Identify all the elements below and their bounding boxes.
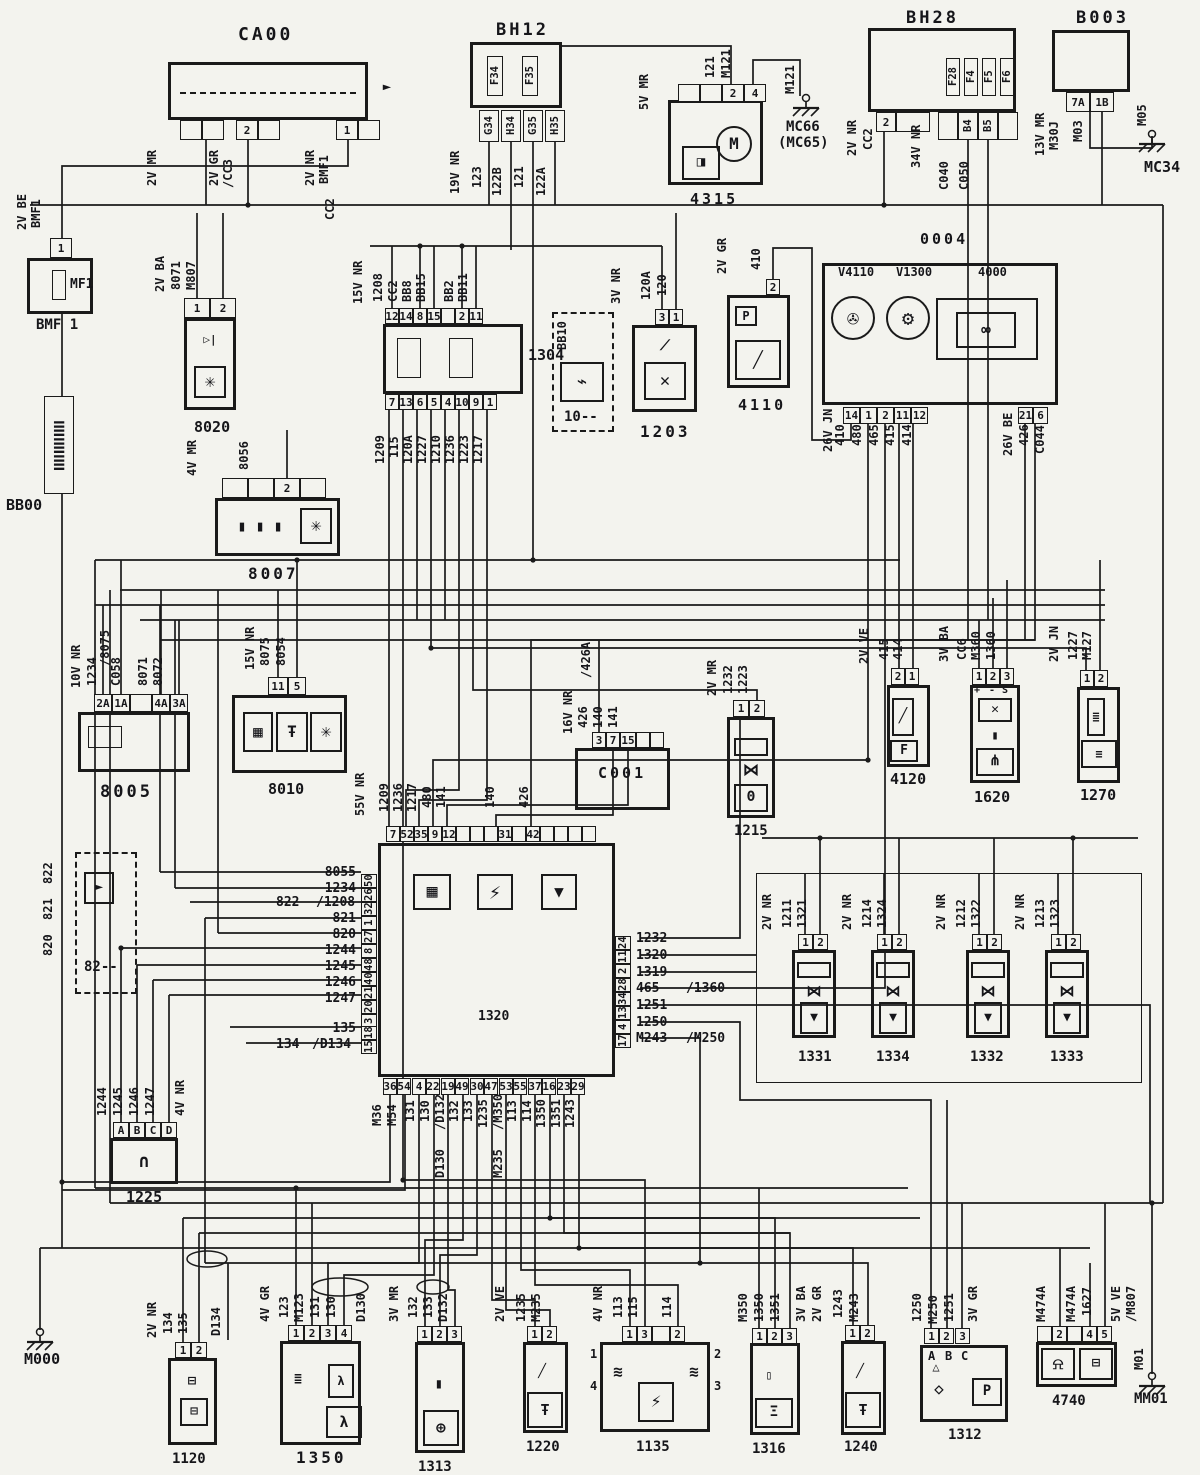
label: 4000 (978, 266, 1007, 278)
label: 1620 (974, 790, 1010, 805)
pin-cell: 24 (615, 936, 631, 950)
wire-label: M807 (185, 261, 197, 290)
wire-label: 2V NR (1014, 894, 1026, 930)
pin-cell: 55 (513, 1078, 527, 1095)
label: 1334 (876, 1050, 910, 1064)
p-icon: P (972, 1378, 1002, 1406)
bowtie-icon: ⋈ (1054, 982, 1080, 1000)
label: 821 (333, 912, 356, 925)
pin-cell: 26 (361, 888, 377, 902)
junction-dot (1070, 835, 1075, 840)
wire-label: 115 (388, 436, 400, 458)
label: 1350 (296, 1450, 347, 1466)
wire-label: 13V MR (1034, 113, 1046, 156)
pin-cell: 2 (987, 934, 1002, 950)
wire-label: 19V NR (449, 151, 461, 194)
wire-label: 3V BA (938, 626, 950, 662)
wire-label: 2V NR (846, 120, 858, 156)
stepper-icon: ∩ (118, 1146, 170, 1178)
wire-label: 1213 (1034, 899, 1046, 928)
pin-cell: 2 (986, 668, 1000, 685)
wire-label: 1322 (970, 899, 982, 928)
pin-cell: 12 (385, 308, 399, 324)
label: MF1 (70, 278, 93, 291)
label: BMF 1 (36, 318, 78, 332)
wire-label: 132 (407, 1296, 419, 1318)
none-icon (1050, 962, 1084, 978)
label: 1245 (325, 960, 356, 973)
label: 135 (333, 1022, 356, 1035)
wire-label: 2V VE (858, 628, 870, 664)
bar-icon: ▮ (990, 726, 1000, 744)
label: /1360 (686, 982, 725, 995)
wire-label: M03 (1072, 120, 1084, 142)
wire-label: 131 (309, 1296, 321, 1318)
eq-icon: ≡ (1081, 740, 1117, 768)
label: 1320 (478, 1010, 509, 1023)
wire-label: 820 (42, 934, 54, 956)
pin-cell: 4 (744, 84, 766, 102)
wire-label: 140 (592, 706, 604, 728)
label: 1316 (752, 1442, 786, 1456)
pin-cell: 1 (417, 1326, 432, 1342)
pin-cell-blank (652, 1326, 670, 1342)
wire-label: 410 (834, 424, 846, 446)
wire-label: BB10 (556, 321, 568, 350)
wire-label: M235 (492, 1149, 504, 1178)
pin-cell: H35 (545, 110, 565, 142)
sensor-icon: ▯ (758, 1356, 780, 1394)
label: BB00 (6, 498, 42, 513)
pin-cell: 3 (782, 1328, 797, 1344)
temp-icon: Ŧ (527, 1392, 563, 1428)
engine-icon: ⚙ (886, 296, 930, 340)
intake-icon: Ξ (755, 1398, 793, 1428)
pin-cell-blank (700, 84, 722, 102)
label: MC34 (1144, 160, 1180, 175)
pin-cell: 16 (542, 1078, 556, 1095)
pin-cell: D (161, 1122, 177, 1138)
wire-label: 8072 (152, 657, 164, 686)
wire-label: /D132 (434, 1094, 446, 1130)
wire-label: 414 (892, 638, 904, 660)
wire-label: CC2 (862, 128, 874, 150)
pin-cell-blank (1037, 1326, 1052, 1342)
wire-label: 15V NR (244, 627, 256, 670)
pin-cell: A (113, 1122, 129, 1138)
ground-mc66 (811, 108, 819, 116)
pin-cell: 23 (557, 1078, 571, 1095)
none-icon (797, 962, 831, 978)
wire-label: 1223 (458, 435, 470, 464)
label: 0004 (920, 232, 968, 247)
spark-icon: ⚡ (638, 1382, 674, 1422)
label: 82-- (84, 960, 118, 974)
wire-label: 1243 (564, 1099, 576, 1128)
label: 1304 (528, 348, 564, 363)
wire-label: 1208 (372, 273, 384, 302)
wire-label: 1350 (753, 1293, 765, 1322)
wire-label: 2V NR (146, 1302, 158, 1338)
label: (MC65) (778, 136, 829, 150)
pin-cell: 2 (939, 1328, 954, 1344)
label: 2 (714, 1348, 721, 1360)
wire-label: BB15 (415, 273, 427, 302)
wire-label: C058 (110, 657, 122, 686)
bowtie-icon: ⋈ (737, 760, 765, 780)
label: 134 (276, 1038, 299, 1051)
wire-label: 3V BA (795, 1286, 807, 1322)
label: M243 (636, 1032, 667, 1045)
pin-cell-blank (582, 826, 596, 842)
pin-cell: 2 (670, 1326, 685, 1342)
label: /D134 (312, 1038, 351, 1051)
pin-cell-blank (300, 478, 326, 498)
pin-cell: 20 (361, 1000, 377, 1014)
wire-label: 1234 (86, 657, 98, 686)
wire-label: 141 (607, 706, 619, 728)
pin-cell: 1 (361, 916, 377, 930)
pin-cell: 1B (1090, 92, 1114, 112)
wire-label: 8071 (137, 657, 149, 686)
motor-icon: M (716, 126, 752, 162)
wire-label: 1245 (112, 1087, 124, 1116)
wire-label: 1236 (444, 435, 456, 464)
pin-cell: 27 (361, 930, 377, 944)
pin-cell: 1 (924, 1328, 939, 1344)
wire-label: M360 (970, 631, 982, 660)
pin-cell: 2 (542, 1326, 557, 1342)
wire-label: 1244 (96, 1087, 108, 1116)
wire-label: D132 (437, 1293, 449, 1322)
pin-cell: 3 (320, 1325, 336, 1341)
pin-cell: 1 (798, 934, 813, 950)
pin-cell: 2 (455, 308, 469, 324)
label: 3 (714, 1380, 721, 1392)
wire-label: 5V MR (638, 74, 650, 110)
wire-label: 2V GR (811, 1286, 823, 1322)
wire-label: 1243 (832, 1289, 844, 1318)
label: 1247 (325, 992, 356, 1005)
plug-icon: ⌁ (560, 362, 604, 402)
ground-mc34 (1157, 144, 1165, 152)
wire-label: 3V GR (967, 1286, 979, 1322)
wire-label: 465 (868, 424, 880, 446)
pin-cell: 11 (469, 308, 483, 324)
wire-label: 1324 (876, 899, 888, 928)
wire-label: BB2 (443, 280, 455, 302)
wire-label: 2V GR (208, 150, 220, 186)
pin-cell: 3 (655, 309, 669, 325)
ground-m000 (45, 1342, 53, 1350)
pin-cell-blank (202, 120, 224, 140)
pin-cell: 1 (336, 120, 358, 140)
label: A (928, 1350, 935, 1362)
wire-label: 1321 (796, 899, 808, 928)
wire-label: 2V BE (16, 194, 28, 230)
pin-cell: 3 (592, 732, 606, 748)
wire-label: 4V MR (186, 440, 198, 476)
wire-label: 122A (535, 167, 547, 196)
wave-icon: ≋ (680, 1352, 708, 1392)
pin-cell-blank (248, 478, 274, 498)
wire-label: 2V NR (761, 894, 773, 930)
wire-label: 2V NR (935, 894, 947, 930)
pin-cell: 2 (1094, 670, 1108, 687)
boxg-icon: ⊟ (180, 1398, 208, 1426)
wire-label: 132 (448, 1100, 460, 1122)
wire-label: 123 (278, 1296, 290, 1318)
wire-label: 123 (471, 166, 483, 188)
wire-label: BMF1 (318, 155, 330, 184)
label: MC66 (786, 120, 820, 134)
wire-label: 414 (901, 424, 913, 446)
slash-icon: ⟋ (646, 336, 684, 358)
wire-label: 1360 (985, 631, 997, 660)
wire-label: 821 (42, 898, 54, 920)
wire-label: 2V NR (841, 894, 853, 930)
junction-dot (1149, 1200, 1154, 1205)
label: B003 (1076, 10, 1129, 27)
label: S (1002, 686, 1008, 696)
inj-icon: ▼ (800, 1002, 828, 1034)
wire (506, 1095, 550, 1326)
wire-label: M01 (1133, 1348, 1145, 1370)
wire-label: 1214 (861, 899, 873, 928)
pin-cell: 2 (813, 934, 828, 950)
pin-cell: 2 (210, 298, 236, 318)
wire-label: M127 (1081, 631, 1093, 660)
wire-label: 1217 (472, 435, 484, 464)
res-icon: ╱ (848, 1354, 872, 1390)
diode-icon: ▷| (192, 328, 228, 352)
label: 8007 (248, 566, 299, 582)
pin-cell: 4 (1082, 1326, 1097, 1342)
label: 1 (590, 1348, 597, 1360)
throttle-icon: ⋔ (976, 748, 1014, 776)
wire-label: BB11 (457, 273, 469, 302)
junction-dot (459, 243, 464, 248)
pin-cell: F34 (487, 56, 503, 96)
wire-label: 135 (177, 1312, 189, 1334)
pin-cell: 4 (615, 1020, 631, 1034)
ground-mc66 (802, 108, 810, 116)
wire-label: CC6 (956, 638, 968, 660)
wire-label: C040 (938, 161, 950, 190)
wire-label: 1227 (1067, 631, 1079, 660)
label: 820 (333, 928, 356, 941)
wire-label: BMF1 (30, 199, 42, 228)
pin-cell: 11 (615, 950, 631, 964)
wire-label: 426 (577, 706, 589, 728)
pin-cell: 7 (385, 394, 399, 410)
wire-label: 822 (42, 862, 54, 884)
pin-cell-blank (180, 120, 202, 140)
pin-cell: F4 (964, 58, 978, 96)
wire-label: 55V NR (354, 773, 366, 816)
wire-label: 426 (518, 786, 530, 808)
junction-dot (400, 1177, 405, 1182)
wire-label: BB8 (401, 280, 413, 302)
boxg-icon: ⊟ (176, 1370, 208, 1394)
pin-cell: C (145, 1122, 161, 1138)
junction-dot (881, 202, 886, 207)
pin-cell: 40 (361, 972, 377, 986)
inj-icon: ▼ (541, 874, 577, 910)
label: 1313 (418, 1460, 452, 1474)
wire-label: 1246 (128, 1087, 140, 1116)
relay-1304-b (449, 338, 473, 378)
wire-label: 1350 (535, 1099, 547, 1128)
wire-label: 2V BA (154, 256, 166, 292)
pin-cell: 19 (441, 1078, 455, 1095)
lambda-icon: λ (326, 1406, 362, 1438)
pin-cell: 15 (427, 308, 441, 324)
pin-cell: 2 (236, 120, 258, 140)
label: M000 (24, 1352, 60, 1367)
res-icon: ╱ (892, 698, 914, 736)
pin-cell-blank (512, 826, 526, 842)
pin-cell: 4A (152, 694, 170, 712)
pin-cell: 3 (447, 1326, 462, 1342)
pin-cell: 47 (484, 1078, 498, 1095)
wire-label: 1323 (1049, 899, 1061, 928)
coils-icon: ≣ (286, 1360, 310, 1400)
wire-label: 1251 (943, 1293, 955, 1322)
wire-label: 114 (521, 1100, 533, 1122)
pin-cell: 42 (526, 826, 540, 842)
pin-cell: 54 (397, 1078, 411, 1095)
res-icon: ╱ (735, 340, 781, 380)
pin-cell: 12 (442, 826, 456, 842)
junction-dot (428, 645, 433, 650)
pin-cell: 7 (606, 732, 620, 748)
wire-label: /426A (580, 642, 592, 678)
pin-cell: 31 (498, 826, 512, 842)
ground-mc66 (793, 108, 801, 116)
label: V1300 (896, 266, 932, 278)
label: 465 (636, 982, 659, 995)
pin-cell: 15 (620, 732, 636, 748)
wire-label: 1232 (722, 665, 734, 694)
pin-cell: 1 (845, 1325, 860, 1341)
wire-label: 410 (750, 248, 762, 270)
pin-cell: 1 (622, 1326, 637, 1342)
pin-cell: 11 (268, 677, 288, 695)
pin-cell: 21 (361, 986, 377, 1000)
wire-label: 5V VE (1110, 1286, 1122, 1322)
inj-icon: ▼ (879, 1002, 907, 1034)
pin-cell: 34 (615, 992, 631, 1006)
label: 1251 (636, 999, 667, 1012)
wire-label: CC2 (387, 280, 399, 302)
key-icon: ► (372, 80, 402, 96)
pin-cell: 36 (383, 1078, 397, 1095)
wire-label: 120 (656, 274, 668, 296)
inj-icon: ▼ (1053, 1002, 1081, 1034)
junction-dot (245, 202, 250, 207)
wire-label: 1209 (374, 435, 386, 464)
label: 1215 (734, 824, 768, 838)
pin-cell: 5 (427, 394, 441, 410)
wire-label: /M807 (1125, 1286, 1137, 1322)
dist-icon: ⊕ (423, 1410, 459, 1446)
pin-cell: 1 (972, 668, 986, 685)
mf1-element (52, 270, 66, 300)
label: 1244 (325, 944, 356, 957)
pin-cell: 30 (470, 1078, 484, 1095)
pin-cell: 6 (413, 394, 427, 410)
pin-cell: 2A (94, 694, 112, 712)
ca00-contact-line (180, 92, 356, 94)
wire-label: 3V NR (610, 268, 622, 304)
label: 8055 (325, 866, 356, 879)
chip-icon: ▦ (413, 874, 451, 910)
fusebox-bh12 (470, 42, 562, 108)
label: - (989, 686, 995, 696)
pin-cell: 13 (399, 394, 413, 410)
wire (473, 410, 757, 700)
none-icon (734, 738, 768, 756)
wire-label: 4V NR (592, 1286, 604, 1322)
pin-cell: 2 (892, 934, 907, 950)
wire-label: 122B (491, 167, 503, 196)
junction-dot (547, 1215, 552, 1220)
label: 1250 (636, 1016, 667, 1029)
pin-cell-blank (938, 112, 958, 140)
wire-label: 8075 (259, 637, 271, 666)
junction-dot (417, 243, 422, 248)
pin-cell-blank (998, 112, 1018, 140)
wire-label: 1210 (430, 435, 442, 464)
shield-oval (417, 1280, 449, 1294)
wire-label: M235 (530, 1293, 542, 1322)
gauge-icon: ∞ (956, 312, 1016, 348)
pin-cell: 22 (426, 1078, 440, 1095)
pin-cell: 2 (766, 279, 780, 295)
pin-cell-blank (678, 84, 700, 102)
wire-label: 15V NR (352, 261, 364, 304)
wire-label: D134 (210, 1307, 222, 1336)
wire-label: 1351 (769, 1293, 781, 1322)
pin-cell: 2 (877, 407, 894, 424)
wire (535, 1095, 678, 1326)
pin-cell: 2 (1066, 934, 1081, 950)
wire-label: 480 (421, 786, 433, 808)
wire-label: 4V NR (174, 1080, 186, 1116)
label: 1319 (636, 966, 667, 979)
wire-label: 426 (1018, 424, 1030, 446)
pin-cell: 52 (400, 826, 414, 842)
pin-cell: 5 (288, 677, 306, 695)
pin-cell: B4 (958, 112, 978, 140)
label: 1333 (1050, 1050, 1084, 1064)
pin-cell: 9 (428, 826, 442, 842)
pin-cell: 2 (191, 1342, 207, 1358)
pin-cell: 1 (669, 309, 683, 325)
wire-label: M05 (1136, 104, 1148, 126)
pin-cell: 3 (637, 1326, 652, 1342)
pin-cell: B5 (978, 112, 998, 140)
junction-dot (865, 757, 870, 762)
wire-label: 120A (640, 271, 652, 300)
wire-label: 130 (419, 1100, 431, 1122)
pin-cell: 3 (955, 1328, 970, 1344)
wire-label: 1212 (955, 899, 967, 928)
pin-cell: 49 (455, 1078, 469, 1095)
junction-dot (59, 1179, 64, 1184)
wire-label: 134 (162, 1312, 174, 1334)
